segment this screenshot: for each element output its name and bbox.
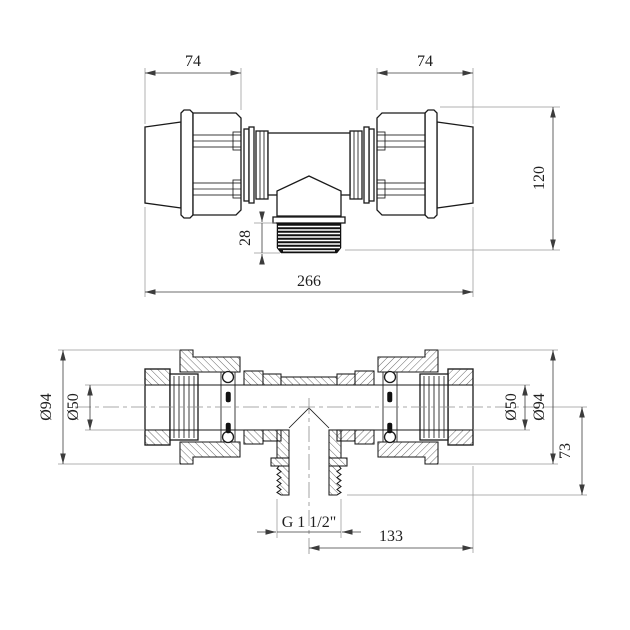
thread-wall-left xyxy=(277,466,289,495)
dim-label-d50-left: Ø50 xyxy=(65,393,82,421)
dim-label-od94-right: Ø94 xyxy=(531,393,548,421)
dim-label-266: 266 xyxy=(297,273,321,290)
dim-label-28: 28 xyxy=(237,230,254,246)
oring-top xyxy=(223,372,234,383)
dim-label-120: 120 xyxy=(531,166,548,190)
nut-body xyxy=(193,113,241,215)
dim-label-thread-spec: G 1 1/2" xyxy=(282,514,337,531)
thread-wall-right xyxy=(329,466,341,495)
dim-label-d50-right: Ø50 xyxy=(503,393,520,421)
nut-skirt-bottom xyxy=(180,442,240,464)
compression-end-right-front xyxy=(350,110,473,218)
dim-label-133: 133 xyxy=(379,528,403,545)
nut-skirt-top xyxy=(180,350,240,372)
pipe-stub xyxy=(145,122,181,208)
dim-label-74-right: 74 xyxy=(417,53,433,70)
dim-label-73: 73 xyxy=(557,443,574,459)
dim-label-od94-left: Ø94 xyxy=(38,393,55,421)
tube-wall-top-section xyxy=(281,377,337,385)
dim-label-74-left: 74 xyxy=(185,53,201,70)
tee-fitting-drawing: 74 74 120 28 266 xyxy=(0,0,630,630)
technical-drawing-canvas: 74 74 120 28 266 xyxy=(0,0,630,630)
front-view xyxy=(145,110,473,253)
compression-end-left-front xyxy=(145,110,268,218)
nut-cap-ring xyxy=(181,110,193,218)
male-thread-front xyxy=(277,223,341,253)
branch-flange-front xyxy=(273,217,345,223)
